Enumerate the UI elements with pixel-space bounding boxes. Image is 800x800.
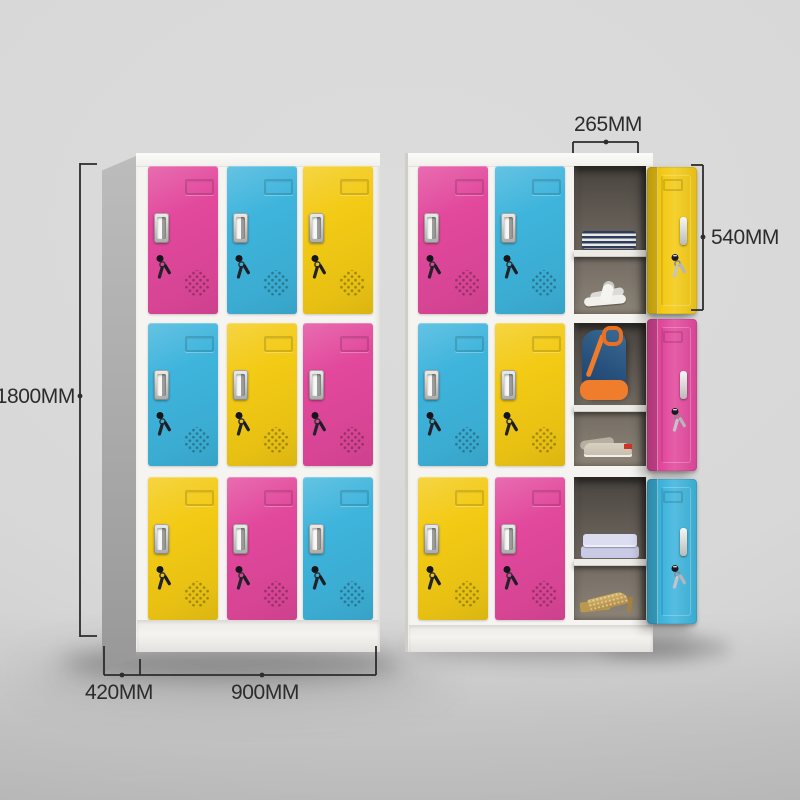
handle-recess [504,374,513,396]
keyhole-with-keys [500,411,524,441]
card-label-slot [532,336,561,352]
left-locker-door-r1c3-yellow [303,166,373,314]
card-label-slot [185,490,214,506]
card-label-slot [340,490,369,506]
handle-recess [236,217,245,239]
open-door-r3-blue [647,479,697,624]
ventilation-holes [334,265,371,302]
handle-recess [427,374,436,396]
shirt [581,546,639,558]
keyhole-with-keys [232,411,256,441]
handle-recess [157,528,166,550]
ventilation-holes [526,265,563,302]
keyhole-with-keys [668,407,692,437]
ventilation-holes [449,265,486,302]
door-hinge-fold [647,319,658,471]
keys-icon [423,565,447,595]
door-handle [309,213,324,243]
handle-recess [157,374,166,396]
door-handle [680,217,687,245]
card-label-slot [185,336,214,352]
handle-recess [312,528,321,550]
keyhole-with-keys [500,254,524,284]
card-label-slot [185,179,214,195]
keys-icon [153,411,177,441]
left-locker-door-r2c3-pink [303,323,373,466]
left-locker-door-r1c2-blue [227,166,297,314]
card-label-slot [340,336,369,352]
door-width-dimension: 265MM [573,113,642,153]
ventilation-holes [258,422,295,459]
door-width-dimension-label: 265MM [574,113,642,136]
card-label-slot [663,491,683,503]
ventilation-holes [526,576,563,613]
keys-icon [423,411,447,441]
high-heels [580,580,642,612]
backpack [582,330,626,397]
door-handle [309,370,324,400]
door-handle [309,524,324,554]
card-label-slot [264,490,293,506]
keys-icon [500,565,524,595]
height-dimension: 1800MM [0,163,97,637]
right-locker-front [405,153,653,652]
keyhole-with-keys [153,254,177,284]
open-compartment-r1 [574,166,646,314]
door-handle [680,371,687,399]
ventilation-holes [449,422,486,459]
compartment-height-dimension-dot [701,235,706,240]
door-hinge-fold [647,167,658,314]
keys-icon [423,254,447,284]
open-door-r2-pink [647,319,697,471]
ventilation-holes [179,265,216,302]
door-width-dimension-dot [604,140,609,145]
door-handle [154,370,169,400]
keyhole-with-keys [308,565,332,595]
ventilation-holes [258,265,295,302]
handle-recess [427,528,436,550]
compartment-shelf [574,405,646,412]
shirt [583,534,637,547]
card-label-slot [532,179,561,195]
door-handle [501,213,516,243]
open-compartment-r3 [574,477,646,620]
keyhole-with-keys [232,565,256,595]
keyhole-with-keys [308,254,332,284]
keyhole-with-keys [500,565,524,595]
door-hinge-fold [647,479,658,624]
left-locker-door-r3c1-yellow [148,477,218,620]
left-locker-side-panel [102,156,136,673]
keys-icon [668,253,692,283]
card-label-slot [532,490,561,506]
handle-recess [427,217,436,239]
keyhole-with-keys [668,253,692,283]
keys-icon [232,411,256,441]
door-handle [501,370,516,400]
right-locker-door-r3c1-yellow [418,477,488,620]
sneakers [580,433,640,457]
compartment-height-dimension: 540MM [691,165,779,310]
right-locker-door-r1c1-pink [418,166,488,314]
keyhole-with-keys [668,564,692,594]
left-locker-door-r3c3-blue [303,477,373,620]
keyhole-with-keys [232,254,256,284]
compartment-shelf [574,250,646,257]
open-door-r1-yellow [647,167,697,314]
door-handle [680,528,687,556]
keys-icon [153,565,177,595]
left-locker-door-r2c2-yellow [227,323,297,466]
door-handle [424,524,439,554]
locker-top-cap [408,153,653,167]
card-label-slot [455,490,484,506]
handle-recess [312,374,321,396]
ventilation-holes [526,422,563,459]
keyhole-with-keys [423,565,447,595]
folded-shirts [581,534,639,558]
keys-icon [668,407,692,437]
locker-product-image: 1800MM 420MM 900MM 265MM 540MM [0,0,800,800]
left-locker-door-r1c1-pink [148,166,218,314]
ventilation-holes [334,576,371,613]
ventilation-holes [179,576,216,613]
left-locker-door-r3c2-pink [227,477,297,620]
handle-recess [504,528,513,550]
keys-icon [500,411,524,441]
door-handle [424,213,439,243]
left-locker-door-r2c1-blue [148,323,218,466]
handle-recess [312,217,321,239]
door-handle [154,524,169,554]
card-label-slot [455,179,484,195]
locker-base [137,620,379,652]
card-label-slot [264,336,293,352]
keys-icon [232,254,256,284]
keys-icon [308,565,332,595]
right-locker-door-r1c2-blue [495,166,565,314]
sneaker-tag [624,444,632,449]
locker-top-cap [136,153,380,167]
ventilation-holes [258,576,295,613]
door-handle [233,524,248,554]
backpack-strap [602,326,623,346]
handle-recess [157,217,166,239]
keyhole-with-keys [153,411,177,441]
door-handle [424,370,439,400]
right-locker-door-r2c2-yellow [495,323,565,466]
keys-icon [308,254,332,284]
keyhole-with-keys [308,411,332,441]
height-dimension-label: 1800MM [0,385,75,408]
left-locker-front [136,153,380,652]
keys-icon [500,254,524,284]
white-slippers [582,277,638,305]
keys-icon [668,564,692,594]
keys-icon [232,565,256,595]
card-label-slot [663,179,683,191]
right-locker-door-r2c1-blue [418,323,488,466]
keyhole-with-keys [423,411,447,441]
compartment-shelf [574,559,646,566]
ventilation-holes [334,422,371,459]
door-handle [501,524,516,554]
card-label-slot [264,179,293,195]
folded-striped-towels [582,231,636,249]
right-locker-door-r3c2-pink [495,477,565,620]
handle-recess [504,217,513,239]
door-handle [233,213,248,243]
card-label-slot [340,179,369,195]
backpack-bottom-pocket [580,380,628,400]
keys-icon [308,411,332,441]
ventilation-holes [449,576,486,613]
keys-icon [153,254,177,284]
open-compartment-r2 [574,323,646,466]
height-dimension-dot [78,394,83,399]
compartment-height-dimension-label: 540MM [711,226,779,249]
door-handle [154,213,169,243]
handle-recess [236,528,245,550]
locker-base [409,625,652,652]
keyhole-with-keys [153,565,177,595]
door-handle [233,370,248,400]
card-label-slot [455,336,484,352]
keyhole-with-keys [423,254,447,284]
handle-recess [236,374,245,396]
ventilation-holes [179,422,216,459]
card-label-slot [663,331,683,343]
